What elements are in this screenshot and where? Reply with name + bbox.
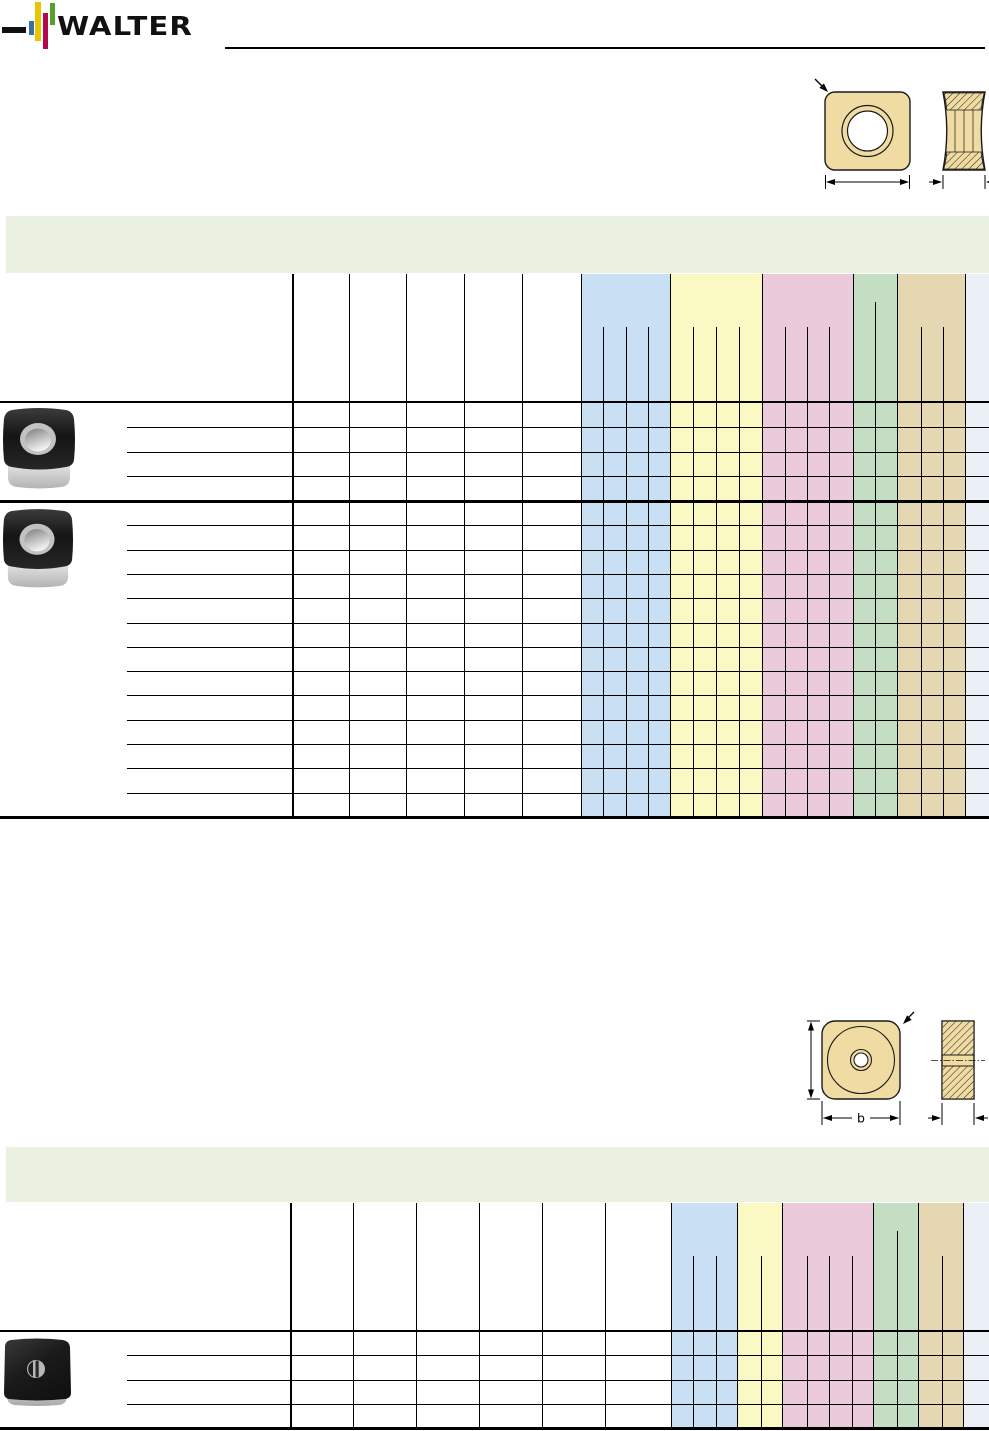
row-separator-line bbox=[127, 793, 989, 794]
column-band-tan bbox=[918, 1203, 963, 1428]
sub-column-line bbox=[875, 302, 876, 817]
row-separator-line bbox=[127, 623, 989, 624]
column-band-boundary bbox=[581, 274, 582, 817]
table-column-line bbox=[479, 1203, 480, 1428]
row-separator-line bbox=[127, 695, 989, 696]
table-main-divider bbox=[290, 1203, 292, 1428]
cutting-edge-arrow-icon bbox=[901, 1012, 914, 1026]
row-separator-line bbox=[127, 1380, 989, 1381]
sub-column-line bbox=[829, 1256, 830, 1428]
column-band-boundary bbox=[897, 274, 898, 817]
column-band-boundary bbox=[671, 1203, 672, 1428]
row-separator-line bbox=[127, 768, 989, 769]
logo-bar-red bbox=[43, 13, 48, 49]
insert-drawing-top bbox=[805, 78, 989, 198]
column-band-lavender bbox=[965, 274, 989, 817]
insert-drawing-bottom: b bbox=[795, 1005, 989, 1133]
group-separator-line bbox=[0, 500, 989, 503]
column-band-tan bbox=[897, 274, 965, 817]
row-separator-line bbox=[127, 452, 989, 453]
column-band-pink bbox=[782, 1203, 873, 1428]
insert-side-view bbox=[943, 92, 985, 170]
row-separator-line bbox=[127, 1404, 989, 1405]
logo-bar-yellow bbox=[35, 2, 41, 41]
insert-side-view bbox=[931, 1021, 985, 1099]
column-band-yellow bbox=[737, 1203, 782, 1428]
table-column-line bbox=[349, 274, 350, 817]
insert-photo bbox=[2, 407, 76, 491]
brand-wordmark: WALTER bbox=[57, 12, 193, 41]
thickness-dimension bbox=[929, 175, 989, 189]
column-band-green bbox=[873, 1203, 918, 1428]
height-dimension bbox=[807, 1021, 820, 1099]
row-separator-line bbox=[127, 550, 989, 551]
column-band-boundary bbox=[762, 274, 763, 817]
row-separator-line bbox=[127, 671, 989, 672]
logo-dash bbox=[2, 27, 26, 33]
insert-front-view bbox=[822, 1021, 900, 1099]
insert-photo bbox=[2, 1338, 72, 1408]
insert-photo bbox=[2, 506, 74, 592]
column-band-boundary bbox=[670, 274, 671, 817]
width-dimension bbox=[826, 175, 910, 189]
cutting-edge-arrow-icon bbox=[815, 79, 830, 94]
row-separator-line bbox=[127, 525, 989, 526]
header-bottom-line bbox=[0, 1330, 989, 1332]
logo-bar-blue bbox=[29, 21, 34, 35]
column-band-boundary bbox=[782, 1203, 783, 1428]
column-band-boundary bbox=[918, 1203, 919, 1428]
table-bottom-line bbox=[0, 1427, 989, 1430]
row-separator-line bbox=[127, 647, 989, 648]
row-separator-line bbox=[127, 1355, 989, 1356]
column-band-boundary bbox=[963, 1203, 964, 1428]
insert-front-view bbox=[825, 92, 910, 170]
column-band-boundary bbox=[737, 1203, 738, 1428]
column-band-lavender bbox=[963, 1203, 989, 1428]
b-dimension-label: b bbox=[857, 1111, 865, 1126]
walter-logo: WALTER bbox=[0, 0, 220, 55]
sub-column-line bbox=[693, 1256, 694, 1428]
table-main-divider bbox=[292, 274, 294, 817]
table-column-line bbox=[406, 274, 407, 817]
sub-column-line bbox=[852, 1256, 853, 1428]
row-separator-line bbox=[127, 598, 989, 599]
row-separator-line bbox=[127, 427, 989, 428]
header-bottom-line bbox=[0, 401, 989, 403]
row-separator-line bbox=[127, 476, 989, 477]
row-separator-line bbox=[127, 574, 989, 575]
sub-column-line bbox=[807, 1256, 808, 1428]
table-column-line bbox=[542, 1203, 543, 1428]
column-band-boundary bbox=[853, 274, 854, 817]
section-title-band bbox=[6, 216, 989, 273]
table-bottom-line bbox=[0, 816, 989, 819]
column-band-blue bbox=[671, 1203, 737, 1428]
row-separator-line bbox=[127, 744, 989, 745]
table-column-line bbox=[522, 274, 523, 817]
section-title-band bbox=[6, 1147, 989, 1202]
b-dimension: b bbox=[822, 1101, 900, 1126]
table-column-line bbox=[605, 1203, 606, 1428]
header-rule bbox=[225, 47, 985, 49]
table-column-line bbox=[464, 274, 465, 817]
column-band-boundary bbox=[965, 274, 966, 817]
sub-column-line bbox=[942, 1256, 943, 1428]
catalog-page: WALTER bbox=[0, 0, 989, 1431]
table-column-line bbox=[353, 1203, 354, 1428]
logo-bar-green bbox=[50, 3, 55, 25]
sub-column-line bbox=[716, 1256, 717, 1428]
row-separator-line bbox=[127, 720, 989, 721]
thickness-dimension bbox=[928, 1103, 988, 1125]
table-column-line bbox=[416, 1203, 417, 1428]
column-band-boundary bbox=[873, 1203, 874, 1428]
sub-column-line bbox=[761, 1256, 762, 1428]
